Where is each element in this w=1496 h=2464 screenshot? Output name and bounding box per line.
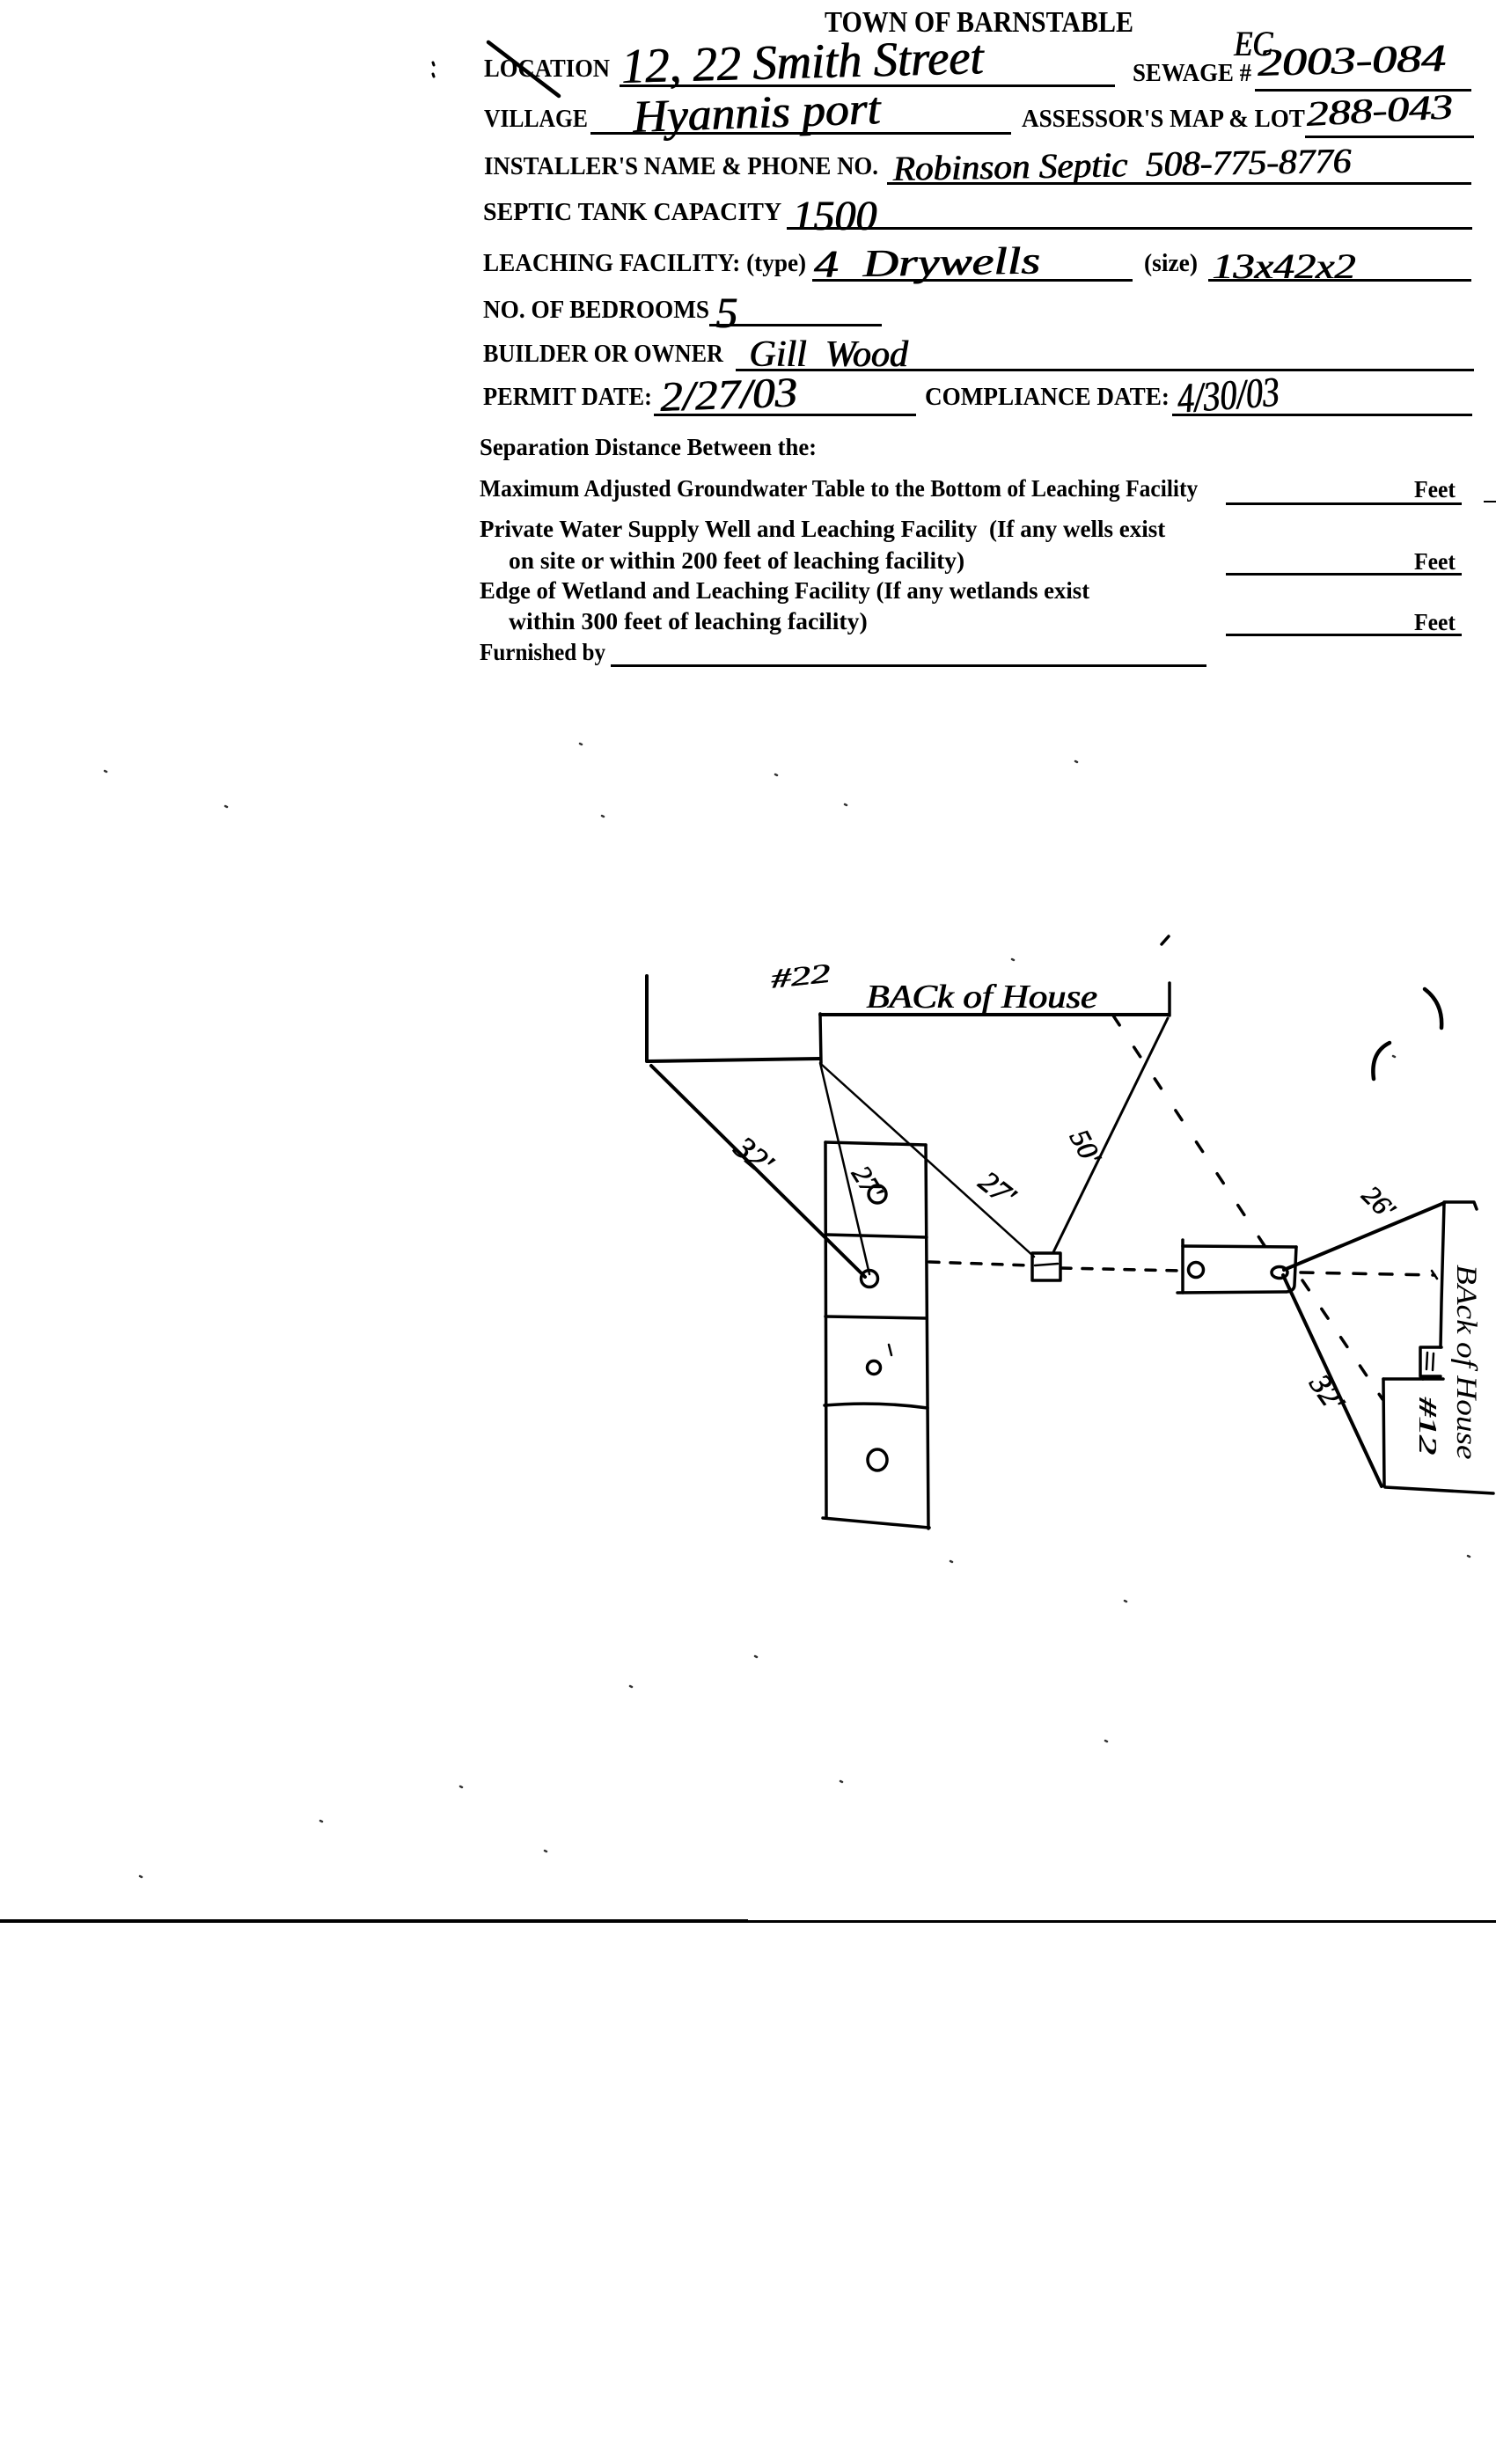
svg-text:50': 50'	[1064, 1124, 1109, 1170]
svg-text:26': 26'	[1356, 1179, 1402, 1225]
svg-text:32': 32'	[1302, 1368, 1351, 1418]
svg-text:32': 32'	[727, 1129, 781, 1182]
